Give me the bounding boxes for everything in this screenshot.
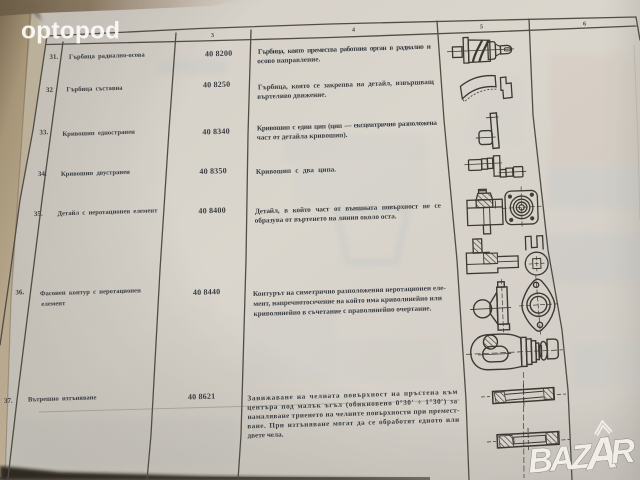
svg-text:optopod: optopod bbox=[21, 18, 120, 45]
svg-text:R: R bbox=[609, 432, 637, 472]
